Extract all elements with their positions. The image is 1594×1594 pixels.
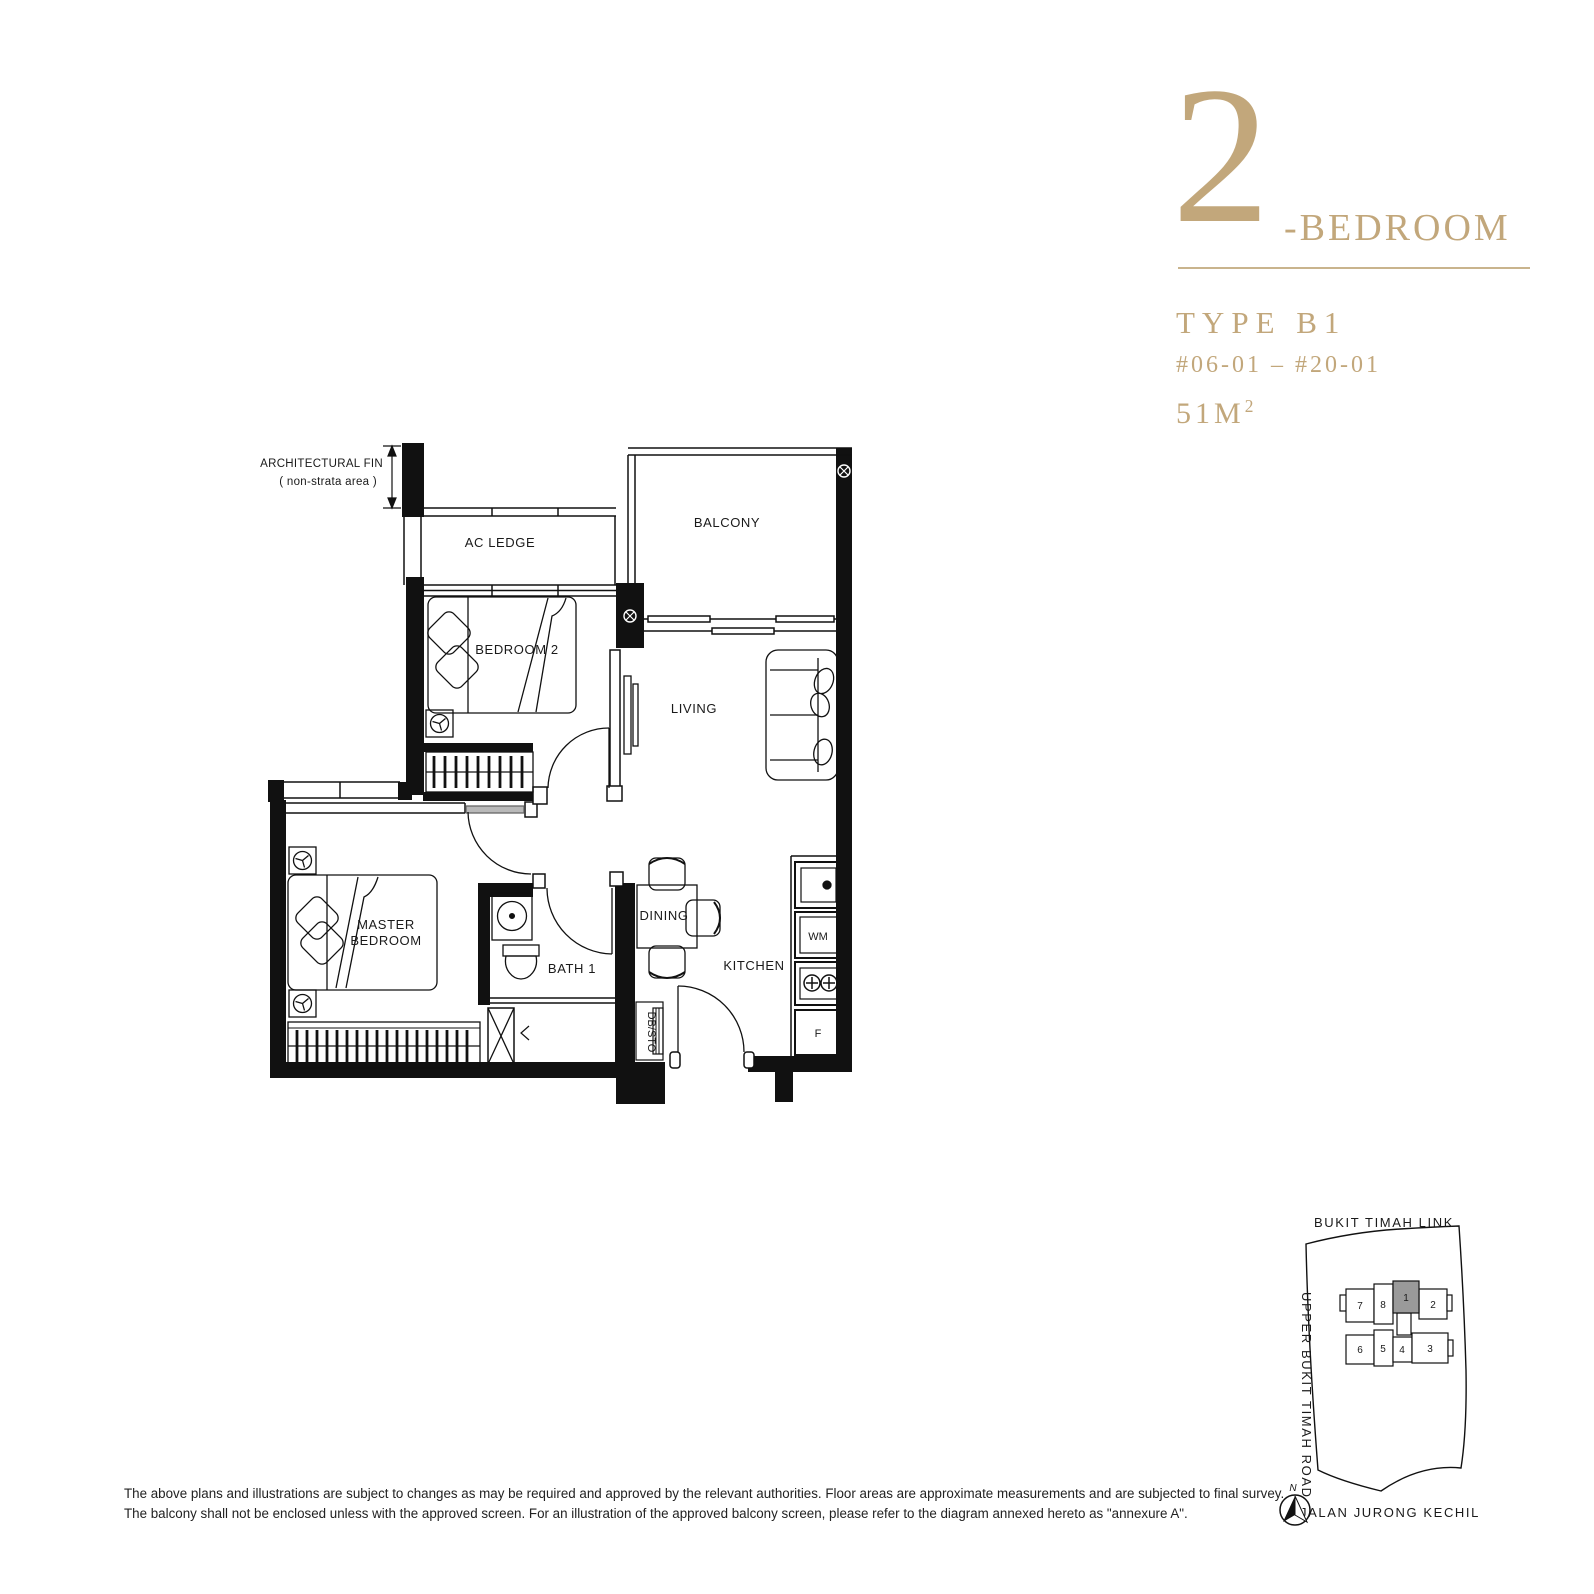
disclaimer-line-1: The above plans and illustrations are su…	[124, 1484, 1510, 1504]
label-living: LIVING	[671, 701, 717, 716]
floor-plan-drawing: ARCHITECTURAL FIN ( non-strata area ) AC…	[0, 0, 1594, 1594]
disclaimer: The above plans and illustrations are su…	[124, 1484, 1510, 1524]
wall-tie-icon	[624, 465, 850, 622]
fin-dimension	[383, 446, 401, 508]
label-master-2: BEDROOM	[350, 933, 421, 948]
label-bedroom2: BEDROOM 2	[475, 642, 558, 657]
unit-8: 8	[1380, 1300, 1386, 1311]
label-master-1: MASTER	[357, 917, 415, 932]
road-bukit-timah-link: BUKIT TIMAH LINK	[1314, 1215, 1454, 1230]
unit-4: 4	[1399, 1345, 1405, 1356]
label-ac-ledge: AC LEDGE	[465, 535, 536, 550]
architectural-fin-label: ARCHITECTURAL FIN	[260, 458, 383, 470]
fan-coil-icon	[289, 710, 453, 1017]
label-washer: WM	[808, 931, 828, 943]
non-strata-label: ( non-strata area )	[279, 476, 377, 488]
label-fridge: F	[815, 1028, 822, 1040]
label-bath1: BATH 1	[548, 961, 596, 976]
unit-3: 3	[1427, 1344, 1433, 1355]
unit-7: 7	[1357, 1301, 1363, 1312]
road-upper-bukit-timah: UPPER BUKIT TIMAH ROAD	[1299, 1292, 1314, 1499]
label-balcony: BALCONY	[694, 515, 760, 530]
furniture	[288, 597, 842, 1064]
unit-2: 2	[1430, 1300, 1436, 1311]
page: 2 -BEDROOM TYPE B1 #06-01 – #20-01 51M2	[0, 0, 1594, 1594]
unit-5: 5	[1380, 1344, 1386, 1355]
label-dining: DINING	[639, 908, 688, 923]
label-dbsto: DB/STO	[645, 1012, 657, 1053]
unit-6: 6	[1357, 1345, 1363, 1356]
site-plan: 7 8 1 2 6 5 4 3 BUKIT TIMAH LINK UPPER B…	[1280, 1215, 1480, 1525]
label-kitchen: KITCHEN	[723, 958, 784, 973]
floor-plan-walls	[268, 443, 852, 1104]
disclaimer-line-2: The balcony shall not be enclosed unless…	[124, 1504, 1510, 1524]
unit-1: 1	[1403, 1293, 1409, 1304]
